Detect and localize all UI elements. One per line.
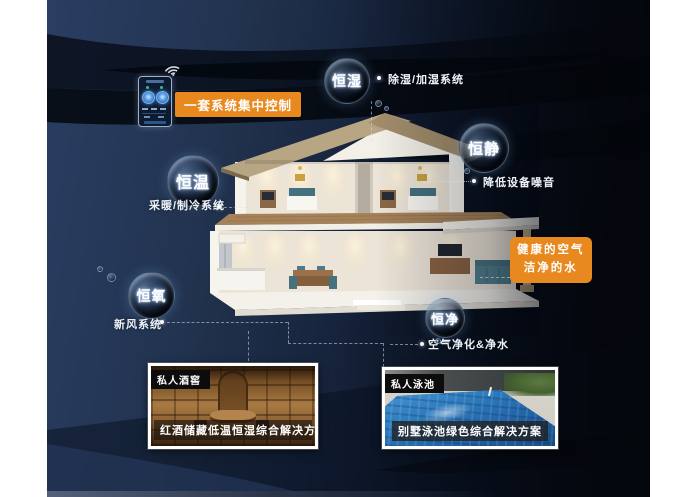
note-hvac-system: 采暖/制冷系统 xyxy=(149,197,225,213)
highlight-line-1: 健康的空气 xyxy=(517,242,585,260)
pool-photo: 私人泳池 别墅泳池绿色综合解决方案 xyxy=(385,370,555,446)
connector-dot xyxy=(472,179,476,183)
phone-stat xyxy=(158,116,164,118)
connector-temperature xyxy=(224,207,258,208)
phone-stat xyxy=(160,108,166,110)
bubble-constant-humidity-label: 恒湿 xyxy=(332,71,362,91)
bubble-constant-quiet: 恒静 xyxy=(459,123,509,173)
connector-quiet xyxy=(435,181,471,182)
bubble-constant-humidity: 恒湿 xyxy=(324,58,370,104)
mini-bubble xyxy=(464,168,470,174)
smart-home-controller xyxy=(138,76,172,127)
mini-bubble xyxy=(435,338,441,344)
bubble-constant-purity: 恒净 xyxy=(425,298,465,338)
phone-title-bar xyxy=(146,80,164,83)
card-caption-wine: 红酒储藏低温恒湿综合解决方案 xyxy=(154,420,312,440)
controller-dial-right xyxy=(156,91,169,104)
connector-highlight xyxy=(480,277,510,278)
phone-stat xyxy=(151,108,157,110)
bubble-constant-quiet-label: 恒静 xyxy=(468,138,500,159)
connector-dot xyxy=(160,320,164,324)
controller-dial-left xyxy=(142,91,155,104)
bottom-edge-band xyxy=(47,491,650,497)
status-dot xyxy=(160,86,163,89)
mini-bubble xyxy=(384,106,389,111)
card-pool: 私人泳池 别墅泳池绿色综合解决方案 xyxy=(382,367,558,449)
bubble-constant-temperature-label: 恒温 xyxy=(176,169,210,193)
connector-dot xyxy=(377,76,381,80)
central-control-label: 一套系统集中控制 xyxy=(175,92,301,117)
bubble-constant-oxygen-label: 恒氧 xyxy=(137,286,167,306)
highlight-line-2: 洁净的水 xyxy=(517,260,585,278)
connector-wine-card xyxy=(248,331,249,361)
mini-bubble xyxy=(107,273,116,282)
pool-plants xyxy=(504,373,555,396)
status-dot xyxy=(146,86,149,89)
connector-oxygen-h2 xyxy=(288,343,383,344)
card-caption-pool: 别墅泳池绿色综合解决方案 xyxy=(392,421,548,441)
connector-dot xyxy=(420,342,424,346)
connector-dot xyxy=(217,205,221,209)
connector-purity xyxy=(390,344,418,345)
card-tag-pool: 私人泳池 xyxy=(385,374,444,393)
poster-canvas: 一套系统集中控制 恒湿 除湿/加湿系统 恒静 降低设备噪音 恒温 采暖/制冷系统… xyxy=(47,0,650,497)
phone-divider xyxy=(142,113,166,114)
wine-cellar-photo: 私人酒窖 红酒储藏低温恒湿综合解决方案 xyxy=(151,366,315,446)
connector-oxygen-v2 xyxy=(383,343,384,367)
note-noise-reduction: 降低设备噪音 xyxy=(483,174,555,190)
note-fresh-air-system: 新风系统 xyxy=(114,316,162,332)
card-tag-wine: 私人酒窖 xyxy=(151,370,210,389)
connector-oxygen-h1 xyxy=(167,322,288,323)
connector-oxygen-v1 xyxy=(288,322,289,343)
note-humidity-system: 除湿/加湿系统 xyxy=(388,71,464,87)
mini-bubble xyxy=(375,100,382,107)
phone-nav-bar xyxy=(144,121,166,124)
air-water-highlight: 健康的空气 洁净的水 xyxy=(510,237,592,283)
card-wine-cellar: 私人酒窖 红酒储藏低温恒湿综合解决方案 xyxy=(148,363,318,449)
mini-bubble xyxy=(97,266,103,272)
bubble-constant-oxygen: 恒氧 xyxy=(128,272,175,319)
phone-stat xyxy=(144,116,150,118)
bubble-constant-purity-label: 恒净 xyxy=(431,309,459,328)
connector-humidity xyxy=(371,101,372,141)
central-control-label-text: 一套系统集中控制 xyxy=(184,99,292,113)
phone-stat xyxy=(142,108,148,110)
